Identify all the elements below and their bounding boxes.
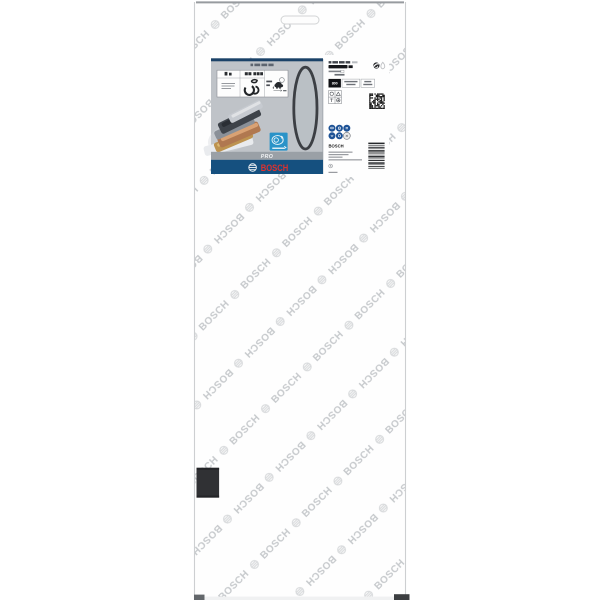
svg-text:BOSCH: BOSCH	[329, 144, 344, 149]
svg-text:PRO: PRO	[261, 154, 273, 160]
svg-text:BOSCH: BOSCH	[261, 162, 289, 173]
svg-text:800: 800	[332, 82, 338, 86]
svg-text:B: B	[330, 164, 332, 168]
